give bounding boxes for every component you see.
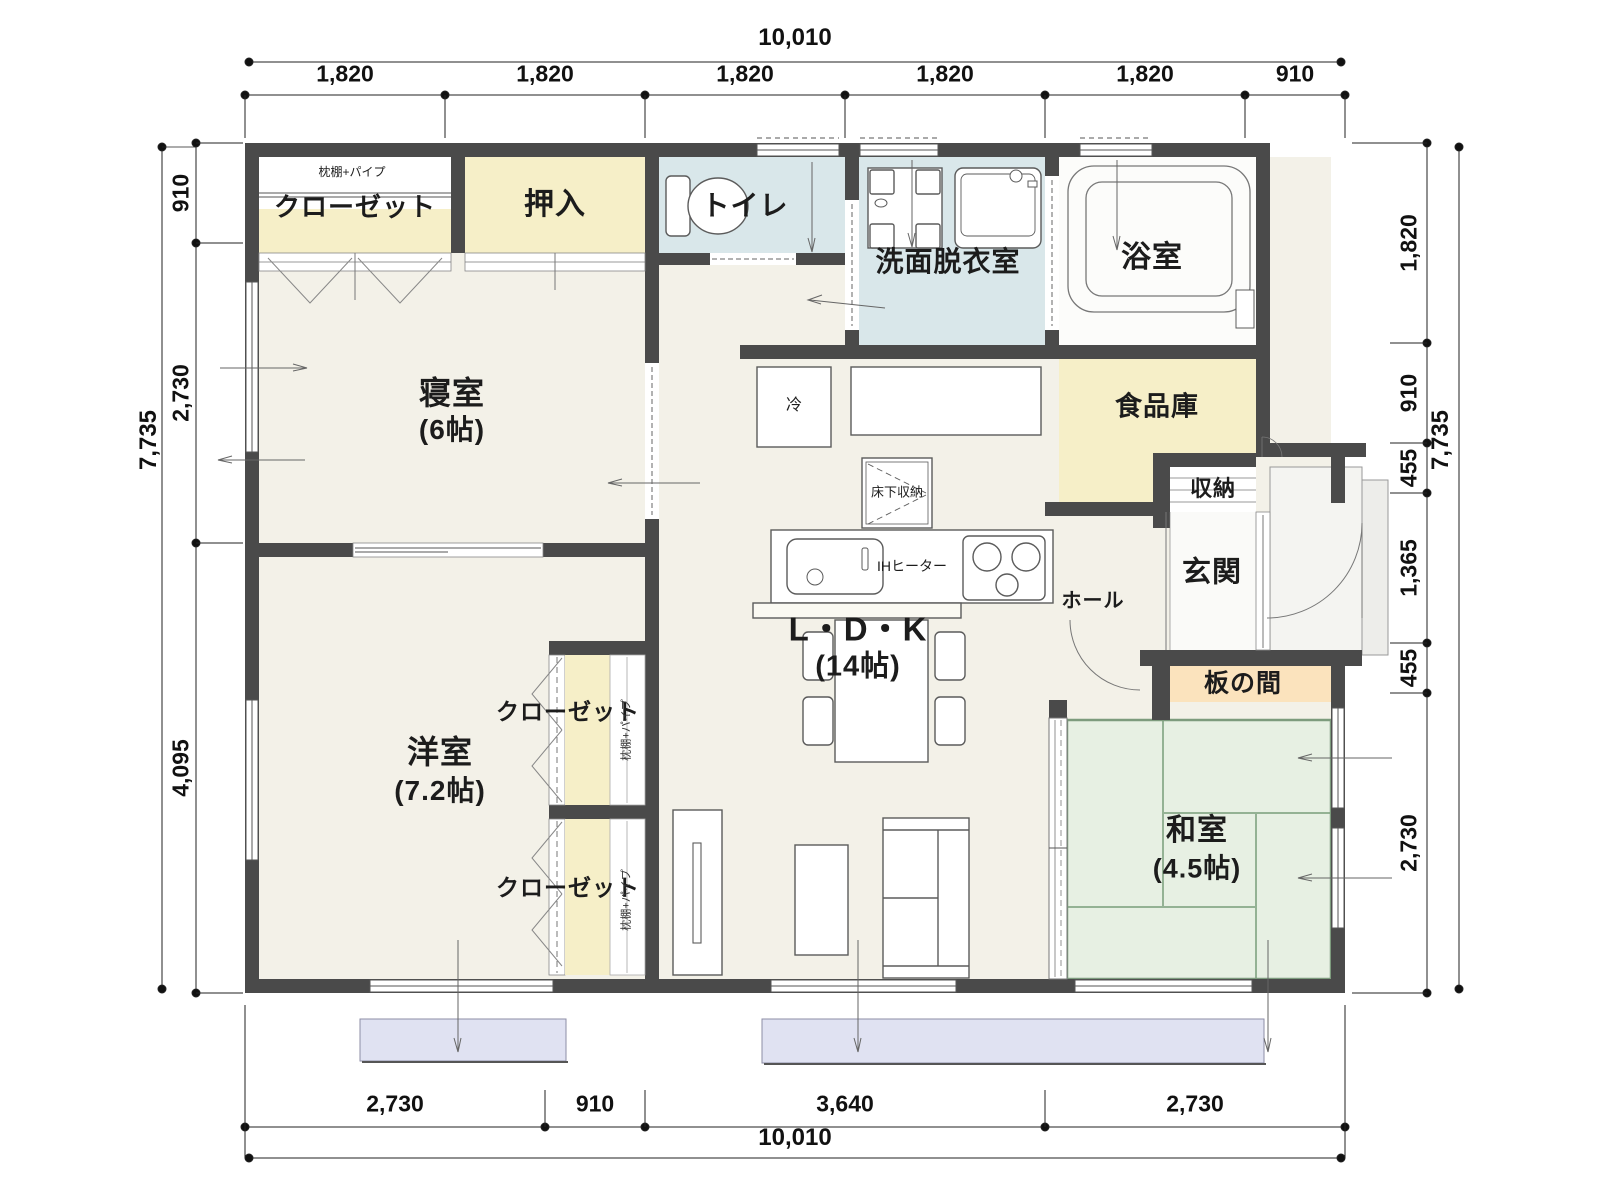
dim-top-seg-1: 1,820 [316,63,374,86]
dim-right-total: 7,735 [1429,410,1453,470]
dim-right-seg-6: 2,730 [1398,814,1421,872]
room-label-closet-mid: クローゼット [496,701,640,724]
dim-bottom-seg-4: 2,730 [1166,1093,1224,1116]
dim-top-seg-3: 1,820 [716,63,774,86]
fixture-label-underfloor-storage: 床下収納 [871,486,923,499]
dim-top-seg-4: 1,820 [916,63,974,86]
dim-left-seg-3: 4,095 [170,739,193,797]
dim-bottom-seg-1: 2,730 [366,1093,424,1116]
dim-right-seg-1: 1,820 [1398,214,1421,272]
room-size-ldk: (14帖) [815,653,901,682]
room-label-pantry: 食品庫 [1115,394,1199,421]
dim-bottom-seg-3: 3,640 [816,1093,874,1116]
fixture-label-refrigerator: 冷 [786,398,802,414]
room-label-youshitsu: 洋室 [407,736,473,768]
dim-top-seg-5: 1,820 [1116,63,1174,86]
room-label-storage: 収納 [1190,478,1236,500]
dim-left-total: 7,735 [137,410,161,470]
closet-nw-note: 枕棚+パイプ [318,166,385,178]
dim-right-seg-2: 910 [1398,374,1421,412]
dim-right-seg-4: 1,365 [1398,539,1421,597]
room-label-oshiire: 押入 [524,190,586,220]
dim-right-seg-5: 455 [1398,649,1421,687]
room-label-itanoma: 板の間 [1204,672,1282,697]
room-label-washroom: 洗面脱衣室 [875,248,1020,276]
room-size-washitsu: (4.5帖) [1153,856,1242,883]
dim-left-seg-2: 2,730 [170,364,193,422]
room-label-bathroom: 浴室 [1121,243,1183,273]
room-label-ldk: L・D・K [789,613,928,646]
decks [360,1019,1266,1064]
fixture-label-ih-heater: IHヒーター [877,559,947,573]
floor-plan: クローゼット 枕棚+パイプ 押入 トイレ 洗面脱衣室 浴室 寝室 (6帖) 食品… [0,0,1600,1200]
room-label-bedroom: 寝室 [419,377,485,409]
room-size-youshitsu: (7.2帖) [394,777,486,805]
closet-mid-note: 枕棚+パイプ [622,699,633,760]
dim-top-seg-2: 1,820 [516,63,574,86]
floor-plan-drawing [0,0,1600,1200]
dim-top-seg-6: 910 [1276,63,1314,86]
closet-south-note: 枕棚+パイプ [622,869,633,930]
dim-bottom-total: 10,010 [758,1126,831,1150]
dim-left-seg-1: 910 [170,174,193,212]
room-size-bedroom: (6帖) [419,416,485,444]
dim-top-total: 10,010 [758,26,831,50]
tatami-mats [1067,720,1331,979]
room-label-closet-south: クローゼット [496,877,640,900]
room-label-hall: ホール [1062,591,1125,611]
dim-right-seg-3: 455 [1398,449,1421,487]
room-label-toilet: トイレ [701,192,788,220]
room-label-washitsu: 和室 [1166,816,1228,846]
room-label-entrance: 玄関 [1182,559,1242,588]
dim-bottom-seg-2: 910 [576,1093,614,1116]
room-label-closet-nw: クローゼット [274,194,436,220]
